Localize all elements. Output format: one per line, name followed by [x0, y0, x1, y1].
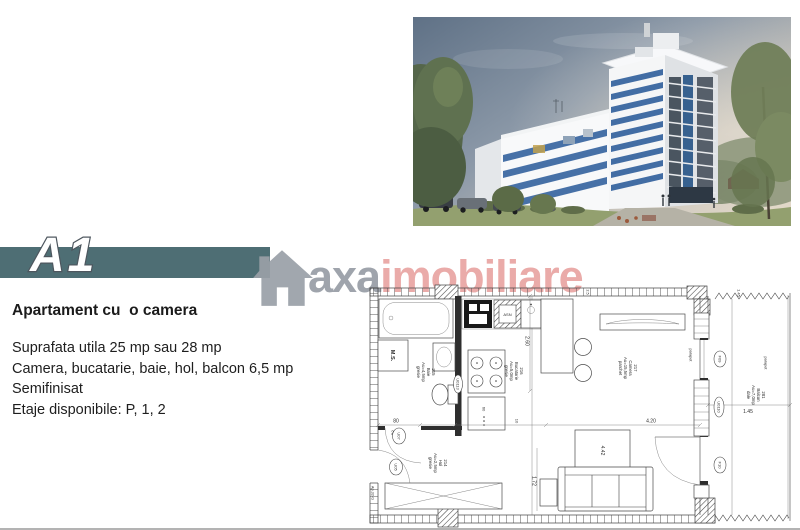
sideboard [600, 314, 685, 330]
floor-plan: M.S. ASN 60 [363, 283, 795, 530]
room-label-camera: 217 Camera Au=15,5mp parchet [618, 357, 638, 380]
room-label-balcon: 281 Balcon Au=7,0mp dale [746, 385, 766, 405]
svg-text:gresie: gresie [428, 457, 433, 469]
top-small-dim: 2.5 [586, 289, 590, 294]
radiators [694, 313, 709, 498]
washing-machine: M.S. [378, 340, 408, 371]
window-tag-F09: F09 [714, 351, 726, 367]
offer-page: { "banner": { "label": "A1" }, "logo": {… [0, 0, 800, 530]
svg-text:gresie: gresie [416, 366, 421, 378]
peninsula-cabinet [541, 299, 573, 373]
svg-text:U05: U05 [394, 463, 399, 471]
svg-text:parchet: parchet [618, 361, 623, 376]
apartment-type-badge: A1 [20, 221, 140, 287]
railing-label: parapet [764, 357, 768, 371]
apartment-number-label: Ap.32-G [371, 486, 375, 500]
sofa [558, 467, 653, 511]
svg-text:U07: U07 [397, 432, 402, 440]
washing-machine-label: M.S. [389, 350, 395, 362]
svg-text:U0113: U0113 [456, 378, 461, 390]
apartment-title: Apartament cu o camera [12, 302, 197, 320]
door-tag-U05: U05 [390, 459, 403, 475]
house-icon [248, 244, 316, 310]
door-tag-U0110: U0110 [714, 397, 724, 417]
svg-text:U0110: U0110 [717, 401, 722, 413]
kitchen-depth-dim: 2.60 [524, 336, 530, 346]
room-label-bucatarie: 216 Bucatarie Au=5,0mp gresie [504, 361, 524, 381]
stove [468, 350, 505, 393]
chair [575, 365, 592, 382]
window-F09-symbol [700, 338, 708, 380]
kitchen-unit-label: ASN [503, 312, 511, 317]
svg-text:F09: F09 [718, 356, 723, 364]
camera-width-dim: 4.20 [646, 419, 656, 425]
balcony-width-dim: 1.45 [743, 409, 753, 415]
balcony-outline [715, 293, 790, 521]
apartment-details: Suprafata utila 25 mp sau 28 mp Camera, … [12, 338, 357, 420]
window-tag-F10: F10 [714, 457, 726, 473]
detail-line-floors: Etaje disponibile: P, 1, 2 [12, 400, 357, 421]
wardrobe [385, 483, 502, 509]
side-table [540, 479, 557, 506]
apartment-type-label: A1 [29, 229, 97, 282]
svg-text:F10: F10 [718, 462, 723, 470]
coffee-table: 4.42 [575, 430, 630, 471]
door-tag-U07: U07 [393, 428, 406, 444]
sofa-zone-dim: 1.72 [531, 476, 537, 486]
detail-line-finish: Semifinisat [12, 379, 357, 400]
cabinet-dim: 60 [482, 407, 487, 412]
bathroom-sink [433, 343, 455, 371]
wall-dim: 10 [515, 419, 520, 424]
balcony-top-dim: 1.45 [737, 289, 742, 298]
bathtub [379, 299, 453, 338]
kitchen-counter: ASN [462, 299, 541, 329]
door-tag-U0113: U0113 [454, 375, 463, 393]
svg-text:gresie: gresie [504, 365, 509, 377]
building-render-photo [413, 17, 791, 226]
door-width-dim: 80 [393, 419, 399, 425]
detail-line-surface: Suprafata utila 25 mp sau 28 mp [12, 338, 357, 359]
svg-text:dale: dale [746, 391, 751, 400]
camera-cross-dim: 4.42 [599, 446, 605, 456]
room-label-hol: 214 Hol Au=2,5mp gresie [428, 453, 448, 473]
railing-label: parapet [689, 349, 693, 363]
chair [575, 339, 592, 356]
detail-line-rooms: Camera, bucatarie, baie, hol, balcon 6,5… [12, 359, 357, 380]
